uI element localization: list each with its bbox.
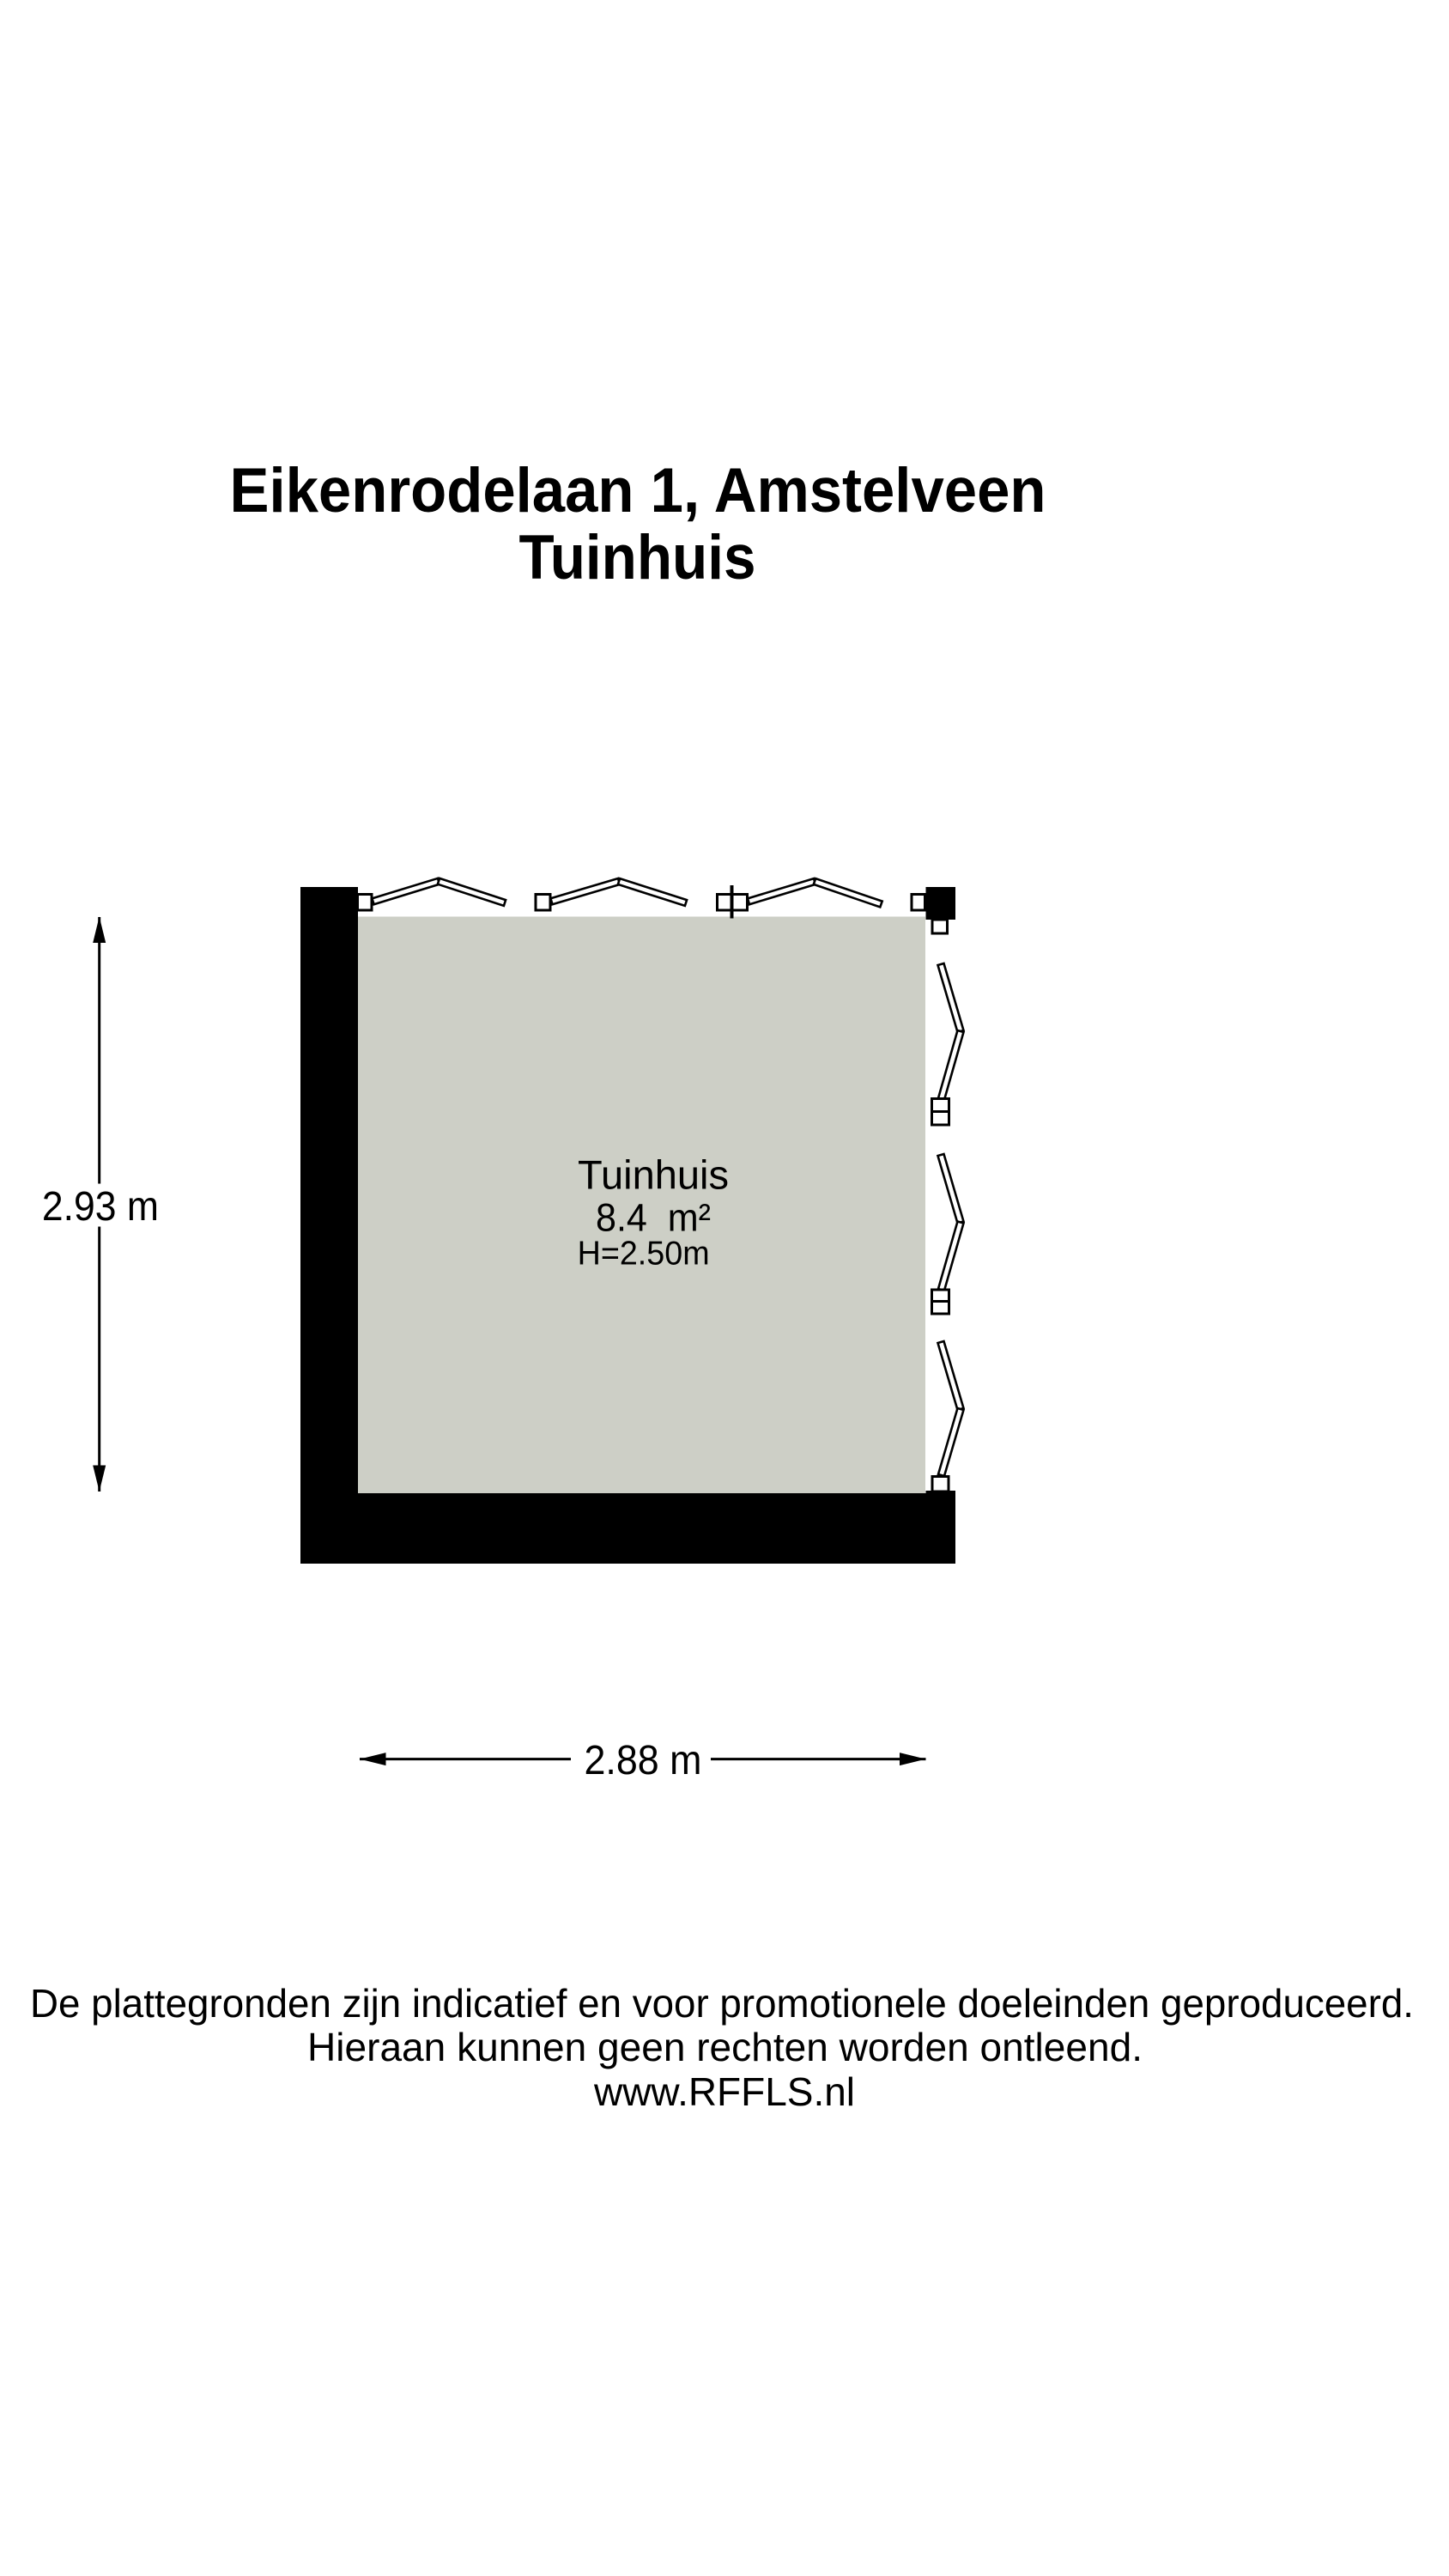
svg-text:Tuinhuis: Tuinhuis [519,523,756,592]
svg-text:De plattegronden zijn indicati: De plattegronden zijn indicatief en voor… [30,1981,1414,2026]
svg-text:Hieraan kunnen geen rechten wo: Hieraan kunnen geen rechten worden ontle… [307,2025,1143,2069]
svg-text:Eikenrodelaan 1, Amstelveen: Eikenrodelaan 1, Amstelveen [230,456,1046,526]
svg-text:2.88 m: 2.88 m [585,1738,702,1783]
svg-text:Tuinhuis: Tuinhuis [578,1152,729,1198]
svg-text:8.4 m²: 8.4 m² [596,1196,711,1240]
svg-text:H=2.50m: H=2.50m [578,1235,710,1272]
svg-text:www.RFFLS.nl: www.RFFLS.nl [593,2069,855,2114]
svg-text:2.93 m: 2.93 m [42,1184,159,1230]
